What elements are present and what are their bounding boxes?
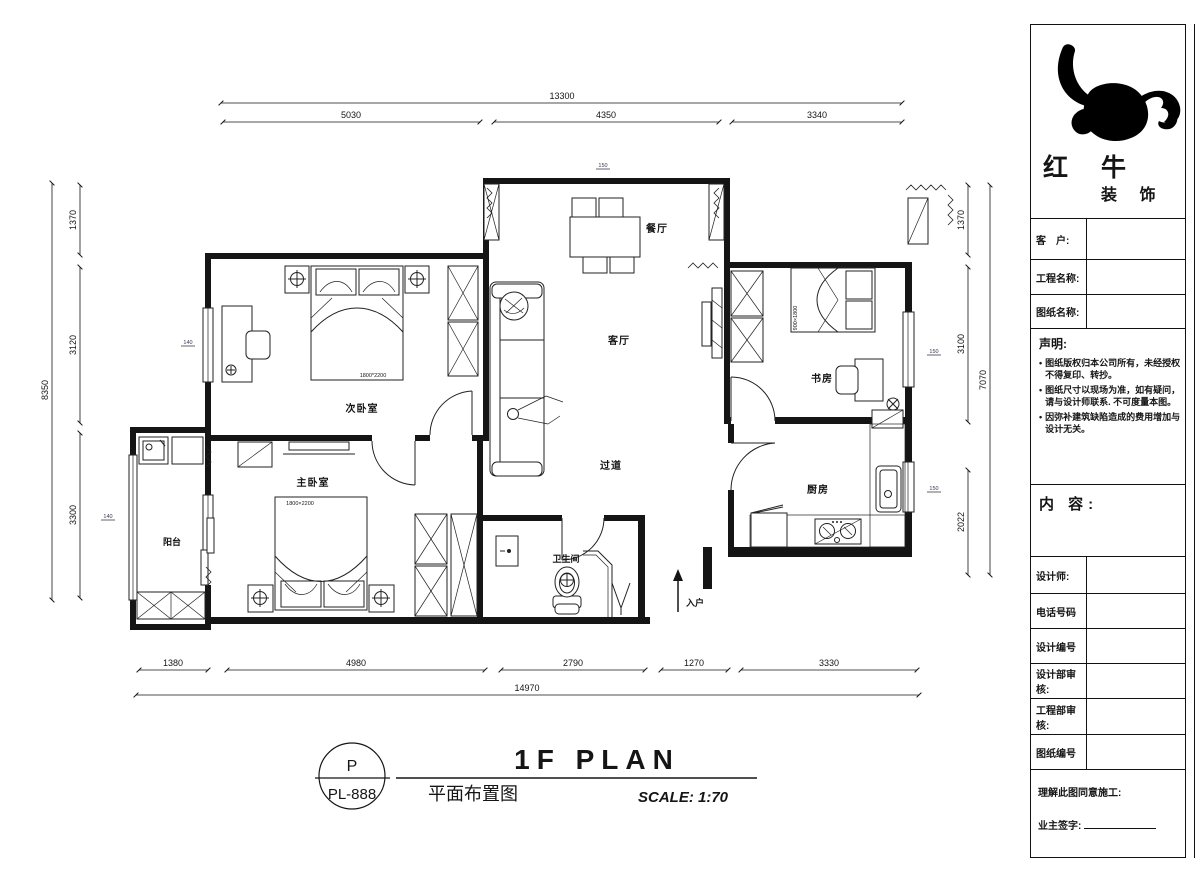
kitchen-sink	[876, 466, 901, 512]
cabinet-study	[872, 410, 903, 428]
dim-left-overall: 8350	[40, 380, 50, 400]
bed2-size-label: 1800*2200	[360, 373, 387, 379]
content-block: 内 容:	[1031, 484, 1185, 556]
room-label-master: 主卧室	[297, 476, 330, 489]
room-label-kitchen: 厨房	[807, 483, 829, 496]
statement-block: 声明: •图纸版权归本公司所有，未经授权不得复印、转抄。 •图纸尺寸以现场为准，…	[1031, 328, 1185, 484]
nightstand	[285, 266, 309, 293]
balcony-shelf	[172, 437, 203, 464]
window-bedroom2	[203, 308, 213, 382]
field-label: 客 户:	[1031, 219, 1087, 259]
info-row-sheet-no: 图纸编号	[1031, 734, 1185, 769]
dim-top-overall: 13300	[549, 91, 574, 101]
desk-study	[836, 359, 883, 401]
dim-left-3: 3300	[68, 505, 78, 525]
bed-master	[275, 497, 367, 610]
logo-cell: 红 牛 装 饰	[1031, 25, 1185, 218]
svg-text:140: 140	[103, 514, 112, 520]
room-label-balcony: 阳台	[163, 536, 181, 547]
stove	[815, 519, 861, 544]
info-label: 设计编号	[1031, 629, 1087, 663]
dim-left-1: 1370	[68, 210, 78, 230]
nightstand	[248, 585, 273, 612]
room-label-bath: 卫生间	[552, 553, 579, 564]
dining-right-column	[709, 184, 724, 240]
info-label: 设计部审核:	[1031, 664, 1087, 698]
dim-top-2: 4350	[596, 110, 616, 120]
info-row-design-review: 设计部审核:	[1031, 663, 1185, 698]
bed-bedroom2	[311, 266, 403, 380]
room-label-study: 书房	[811, 372, 833, 385]
entry-arrow-icon	[673, 569, 683, 581]
wardrobe-bedroom2	[448, 266, 478, 376]
field-label: 工程名称:	[1031, 260, 1087, 294]
title-panel: 红 牛 装 饰 客 户: 工程名称: 图纸名称: 声明: •图纸版权归本公司所有…	[1030, 24, 1186, 858]
agreement-text: 理解此图同意施工:	[1038, 784, 1185, 799]
door-master	[372, 441, 415, 485]
signature-block: 理解此图同意施工: 业主签字:	[1031, 769, 1185, 859]
field-row-client: 客 户:	[1031, 218, 1185, 259]
dim-bottom-5: 3330	[819, 658, 839, 668]
title-cn: 平面布置图	[428, 784, 518, 804]
door-study	[731, 377, 775, 421]
dim-bottom-3: 2790	[563, 658, 583, 668]
shower	[583, 551, 630, 617]
brand-subname: 装 饰	[1101, 181, 1164, 205]
wardrobe-study	[731, 271, 763, 362]
info-label: 工程部审核:	[1031, 699, 1087, 734]
desk-bedroom2	[222, 306, 270, 382]
entry-marker: 入户	[673, 569, 704, 612]
room-label-entry: 入户	[685, 597, 704, 608]
room-label-bedroom2: 次卧室	[346, 402, 379, 415]
window-balcony	[129, 455, 137, 600]
window-study	[903, 312, 914, 387]
statement-title: 声明:	[1039, 335, 1181, 352]
dim-bottom-2: 4980	[346, 658, 366, 668]
field-row-drawing: 图纸名称:	[1031, 294, 1185, 328]
room-label-living: 客厅	[607, 334, 630, 347]
drawing-title-block: P PL-888 1F PLAN 平面布置图 SCALE: 1:70	[315, 743, 757, 809]
title-scale: SCALE: 1:70	[638, 789, 729, 806]
dim-top-3: 3340	[807, 110, 827, 120]
svg-text:150: 150	[598, 163, 607, 169]
study-bed-size-label: 900×1800	[793, 306, 799, 331]
bubble-code-top: P	[347, 758, 358, 775]
svg-text:150: 150	[929, 486, 938, 492]
title-en: 1F PLAN	[514, 744, 680, 775]
info-row-design-no: 设计编号	[1031, 628, 1185, 663]
info-label: 图纸编号	[1031, 735, 1087, 769]
dim-right-2: 3100	[956, 334, 966, 354]
tv-unit-living	[702, 288, 722, 358]
bullet-icon: •	[1039, 412, 1042, 435]
cabinet-master	[238, 442, 272, 467]
balcony-cabinet	[137, 592, 205, 619]
bed-study	[791, 268, 875, 332]
dim-bottom-overall: 14970	[514, 683, 539, 693]
floor-plan-drawing: 餐厅 客厅 次卧室 主卧室 书房 厨房 过道 卫生间 阳台 1800*2200 …	[0, 0, 1030, 870]
dim-top-1: 5030	[341, 110, 361, 120]
dim-right-3: 2022	[956, 512, 966, 532]
bullet-icon: •	[1039, 385, 1042, 408]
washbasin	[496, 536, 518, 566]
kitchen-cabinet	[751, 505, 787, 547]
dim-right-1: 1370	[956, 210, 966, 230]
field-label: 图纸名称:	[1031, 295, 1087, 328]
washing-machine	[139, 437, 168, 464]
info-label: 电话号码	[1031, 594, 1087, 628]
dim-bottom-4: 1270	[684, 658, 704, 668]
statement-item: 因弥补建筑缺陷造成的费用增加与设计无关。	[1045, 412, 1181, 435]
nightstand	[405, 266, 429, 293]
bullet-icon: •	[1039, 358, 1042, 381]
dim-bottom-1: 1380	[163, 658, 183, 668]
statement-item: 图纸版权归本公司所有，未经授权不得复印、转抄。	[1045, 358, 1181, 381]
statement-item: 图纸尺寸以现场为准，如有疑问，请与设计师联系. 不可度量本图。	[1045, 385, 1181, 408]
page-frame-line	[1194, 24, 1195, 858]
wardrobe-master	[415, 514, 477, 616]
signature-line[interactable]	[1084, 818, 1156, 829]
info-label: 设计师:	[1031, 557, 1087, 593]
bubble-code-bottom: PL-888	[328, 786, 376, 803]
plant	[500, 292, 528, 320]
svg-text:140: 140	[183, 340, 192, 346]
brand-name: 红 牛	[1043, 148, 1139, 184]
door-kitchen	[731, 443, 775, 490]
room-label-hall: 过道	[600, 459, 622, 472]
room-label-dining: 餐厅	[645, 222, 668, 235]
owner-signature-label: 业主签字:	[1038, 821, 1081, 832]
dining-table	[570, 198, 640, 273]
tv-master	[283, 442, 355, 454]
nightstand	[369, 585, 394, 612]
dim-right-overall: 7070	[978, 370, 988, 390]
lamp-study	[887, 398, 899, 410]
master-bed-size-label: 1800×2200	[286, 501, 314, 507]
svg-text:150: 150	[929, 349, 938, 355]
door-bedroom2	[430, 391, 472, 435]
toilet	[553, 567, 581, 614]
dim-left-2: 3120	[68, 335, 78, 355]
info-row-phone: 电话号码	[1031, 593, 1185, 628]
info-row-designer: 设计师:	[1031, 556, 1185, 593]
info-row-eng-review: 工程部审核:	[1031, 698, 1185, 734]
field-row-project: 工程名称:	[1031, 259, 1185, 294]
